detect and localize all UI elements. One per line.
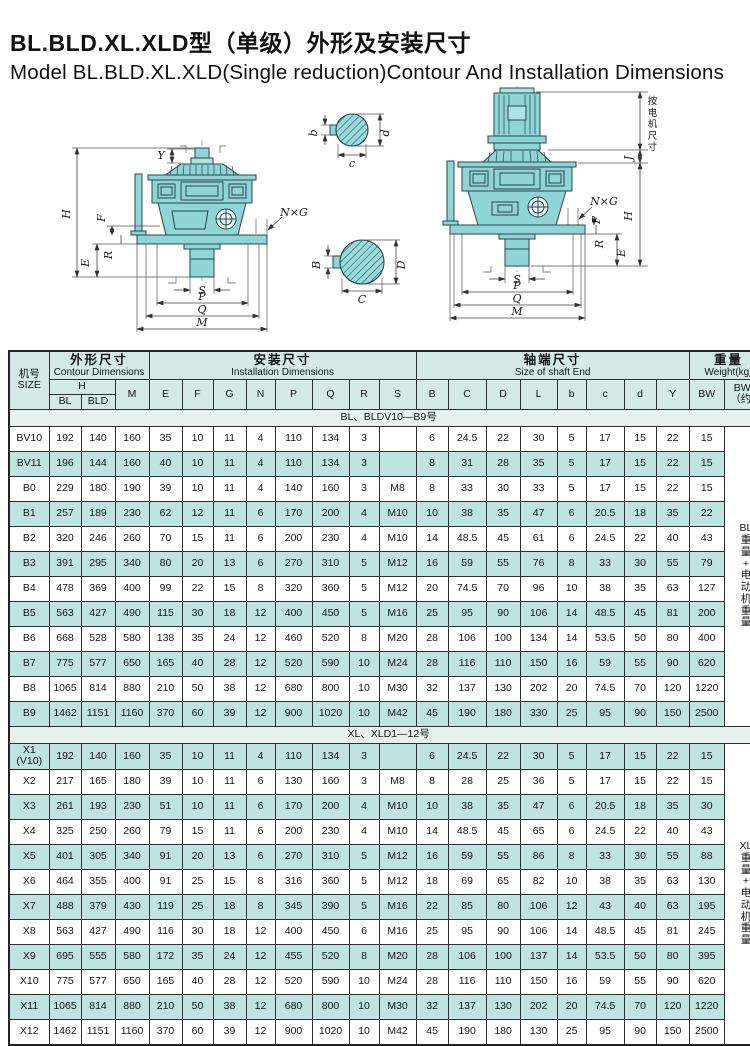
- data-cell: 900: [275, 1020, 312, 1046]
- data-cell: 25: [557, 701, 586, 726]
- data-cell: 28: [213, 651, 246, 676]
- col-header-bw: BW: [689, 380, 724, 410]
- data-cell: 202: [520, 995, 557, 1020]
- data-cell: 106: [520, 601, 557, 626]
- data-cell: 6: [557, 820, 586, 845]
- data-cell: M8: [379, 476, 416, 501]
- data-cell: 11: [213, 795, 246, 820]
- data-cell: 200: [689, 601, 724, 626]
- data-cell: 12: [557, 895, 586, 920]
- row-size-cell: X6: [9, 870, 49, 895]
- data-cell: 36: [520, 770, 557, 795]
- row-size-cell: X10: [9, 970, 49, 995]
- data-cell: 12: [246, 651, 275, 676]
- data-cell: 200: [275, 526, 312, 551]
- data-cell: 35: [486, 795, 520, 820]
- data-cell: 6: [246, 526, 275, 551]
- data-cell: 127: [689, 576, 724, 601]
- data-cell: 30: [689, 795, 724, 820]
- data-cell: 165: [149, 970, 182, 995]
- data-cell: 15: [689, 743, 724, 770]
- data-cell: 8: [557, 551, 586, 576]
- table-row: X646435540091251583163605M12186965821038…: [9, 870, 750, 895]
- data-cell: 70: [624, 676, 656, 701]
- data-cell: 40: [182, 970, 213, 995]
- data-cell: 140: [275, 476, 312, 501]
- data-cell: 63: [656, 870, 689, 895]
- data-cell: 305: [81, 845, 115, 870]
- data-cell: 59: [448, 551, 486, 576]
- data-cell: 30: [182, 601, 213, 626]
- data-cell: 10: [182, 743, 213, 770]
- page-title-en: Model BL.BLD.XL.XLD(Single reduction)Con…: [0, 58, 750, 85]
- col-header-bld: BLD: [81, 394, 115, 409]
- data-cell: 137: [520, 945, 557, 970]
- data-cell: 1160: [115, 701, 149, 726]
- data-cell: 18: [624, 795, 656, 820]
- data-cell: 32: [416, 676, 448, 701]
- data-cell: 668: [49, 626, 81, 651]
- data-cell: 230: [115, 501, 149, 526]
- data-cell: 14: [416, 526, 448, 551]
- data-cell: 65: [486, 870, 520, 895]
- data-cell: 20.5: [586, 795, 624, 820]
- dim-label-p: P: [197, 290, 206, 303]
- data-cell: 680: [275, 995, 312, 1020]
- data-cell: 200: [312, 501, 349, 526]
- data-cell: 110: [275, 451, 312, 476]
- data-cell: 555: [81, 945, 115, 970]
- data-cell: 400: [115, 576, 149, 601]
- data-cell: 59: [586, 970, 624, 995]
- data-cell: 35: [624, 870, 656, 895]
- data-cell: 62: [149, 501, 182, 526]
- data-cell: 14: [557, 601, 586, 626]
- data-cell: 250: [81, 820, 115, 845]
- data-cell: 577: [81, 970, 115, 995]
- dim-label-p-right: P: [512, 279, 521, 292]
- data-cell: 160: [312, 476, 349, 501]
- data-cell: 48.5: [586, 601, 624, 626]
- table-row: B125718923062121161702004M1010383547620.…: [9, 501, 750, 526]
- data-cell: 90: [486, 601, 520, 626]
- data-cell: 160: [115, 743, 149, 770]
- data-cell: 355: [81, 870, 115, 895]
- table-row: X432525026079151162002304M101448.5456562…: [9, 820, 750, 845]
- data-cell: 11: [213, 770, 246, 795]
- data-cell: 40: [656, 526, 689, 551]
- dim-label-c-small: c: [349, 157, 355, 170]
- data-cell: 1151: [81, 1020, 115, 1046]
- data-cell: 137: [448, 676, 486, 701]
- data-cell: 95: [448, 920, 486, 945]
- data-cell: 4: [349, 820, 379, 845]
- data-cell: M8: [379, 770, 416, 795]
- data-cell: 80: [656, 626, 689, 651]
- data-cell: 8: [349, 945, 379, 970]
- col-header-y: Y: [656, 380, 689, 410]
- table-row: B447836940099221583203605M122074.5709610…: [9, 576, 750, 601]
- data-cell: 360: [312, 870, 349, 895]
- col-group-installation: 安装尺寸 Installation Dimensions: [149, 351, 416, 380]
- data-cell: 134: [312, 451, 349, 476]
- data-cell: 17: [586, 743, 624, 770]
- data-cell: 140: [81, 743, 115, 770]
- dim-label-c-large: C: [358, 293, 367, 306]
- table-row: X1077557765016540281252059010M2428116110…: [9, 970, 750, 995]
- data-cell: 15: [213, 576, 246, 601]
- data-cell: 18: [213, 601, 246, 626]
- data-cell: 22: [689, 501, 724, 526]
- data-cell: 106: [448, 945, 486, 970]
- data-cell: 11: [213, 451, 246, 476]
- table-row: B777557765016540281252059010M24281161101…: [9, 651, 750, 676]
- data-cell: 90: [624, 701, 656, 726]
- data-cell: 257: [49, 501, 81, 526]
- table-body: BL、BLDV10—B9号BV1019214016035101141101343…: [9, 409, 750, 1045]
- dim-label-e-right: E: [615, 249, 628, 258]
- data-cell: 6: [557, 795, 586, 820]
- data-cell: 22: [656, 451, 689, 476]
- data-cell: 5: [349, 551, 379, 576]
- data-cell: 17: [586, 426, 624, 451]
- motor-size-note: 按 电 机 尺 寸: [646, 96, 659, 154]
- input-shaft-section-drawing: b d c: [307, 114, 392, 170]
- dim-label-f: F: [95, 214, 108, 223]
- table-row: X540130534091201362703105M12165955868333…: [9, 845, 750, 870]
- data-cell: 3: [349, 426, 379, 451]
- data-cell: 28: [416, 626, 448, 651]
- data-cell: 33: [520, 476, 557, 501]
- data-cell: 106: [520, 895, 557, 920]
- col-header-l: L: [520, 380, 557, 410]
- data-cell: 35: [486, 501, 520, 526]
- table-row: X326119323051101161702004M1010383547620.…: [9, 795, 750, 820]
- data-cell: 15: [182, 526, 213, 551]
- dim-label-q: Q: [197, 303, 206, 316]
- data-cell: 390: [312, 895, 349, 920]
- data-cell: 217: [49, 770, 81, 795]
- data-cell: 110: [486, 970, 520, 995]
- data-cell: 35: [656, 795, 689, 820]
- data-cell: 5: [349, 895, 379, 920]
- data-cell: 6: [246, 501, 275, 526]
- data-cell: 360: [312, 576, 349, 601]
- data-cell: 400: [275, 920, 312, 945]
- data-cell: 520: [312, 626, 349, 651]
- data-cell: 39: [149, 476, 182, 501]
- data-cell: 35: [656, 501, 689, 526]
- data-cell: 15: [624, 770, 656, 795]
- dim-label-b-small: b: [307, 129, 320, 136]
- data-cell: 5: [557, 476, 586, 501]
- data-cell: 195: [689, 895, 724, 920]
- col-header-c-low: c: [586, 380, 624, 410]
- data-cell: 53.5: [586, 945, 624, 970]
- data-cell: 4: [246, 476, 275, 501]
- data-cell: 1462: [49, 1020, 81, 1046]
- data-cell: 150: [520, 970, 557, 995]
- row-size-cell: BV11: [9, 451, 49, 476]
- data-cell: 20: [416, 576, 448, 601]
- data-cell: 59: [448, 845, 486, 870]
- data-cell: 5: [349, 870, 379, 895]
- dim-label-d-large: D: [395, 260, 408, 270]
- data-cell: 11: [213, 820, 246, 845]
- output-shaft-section-drawing: B D C: [310, 240, 408, 306]
- dim-label-j: J: [622, 155, 635, 162]
- data-cell: 6: [349, 920, 379, 945]
- table-row: X1 (V10)19214016035101141101343624.52230…: [9, 743, 750, 770]
- data-cell: 35: [149, 743, 182, 770]
- data-cell: 14: [557, 626, 586, 651]
- data-cell: 230: [312, 526, 349, 551]
- data-cell: 18: [213, 895, 246, 920]
- dim-label-h: H: [60, 209, 73, 220]
- data-cell: 134: [520, 626, 557, 651]
- data-cell: 395: [689, 945, 724, 970]
- data-cell: 55: [656, 551, 689, 576]
- data-cell: 137: [448, 995, 486, 1020]
- col-group-contour: 外形尺寸 Contour Dimensions: [49, 351, 149, 380]
- data-cell: 478: [49, 576, 81, 601]
- col-header-p: P: [275, 380, 312, 410]
- col-header-f: F: [182, 380, 213, 410]
- data-cell: M20: [379, 945, 416, 970]
- data-cell: 43: [689, 820, 724, 845]
- data-cell: 12: [246, 920, 275, 945]
- data-cell: 30: [624, 845, 656, 870]
- data-cell: 35: [182, 945, 213, 970]
- data-cell: 10: [349, 676, 379, 701]
- data-cell: 119: [149, 895, 182, 920]
- data-cell: 800: [312, 676, 349, 701]
- data-cell: 50: [182, 995, 213, 1020]
- data-cell: 460: [275, 626, 312, 651]
- data-cell: 210: [149, 676, 182, 701]
- data-cell: 202: [520, 676, 557, 701]
- data-cell: 80: [486, 895, 520, 920]
- row-size-cell: B4: [9, 576, 49, 601]
- data-cell: 45: [416, 1020, 448, 1046]
- data-cell: 45: [624, 601, 656, 626]
- data-cell: 590: [312, 651, 349, 676]
- table-row: X7488379430119251883453905M1622858010612…: [9, 895, 750, 920]
- data-cell: 30: [520, 743, 557, 770]
- col-header-b-cap: B: [416, 380, 448, 410]
- data-cell: 16: [557, 970, 586, 995]
- data-cell: 15: [689, 426, 724, 451]
- data-cell: 30: [486, 476, 520, 501]
- data-cell: 18: [416, 870, 448, 895]
- data-cell: 15: [689, 770, 724, 795]
- data-cell: 20.5: [586, 501, 624, 526]
- data-cell: 8: [557, 845, 586, 870]
- data-cell: 15: [689, 451, 724, 476]
- page-title-cn: BL.BLD.XL.XLD型（单级）外形及安装尺寸: [0, 0, 750, 58]
- data-cell: 246: [81, 526, 115, 551]
- row-size-cell: X11: [9, 995, 49, 1020]
- data-cell: 60: [182, 701, 213, 726]
- data-cell: 50: [624, 945, 656, 970]
- data-cell: 10: [416, 795, 448, 820]
- section-label: BL、BLDV10—B9号: [9, 409, 750, 426]
- data-cell: 261: [49, 795, 81, 820]
- data-cell: 110: [275, 743, 312, 770]
- data-cell: 577: [81, 651, 115, 676]
- data-cell: 427: [81, 920, 115, 945]
- data-cell: 47: [520, 795, 557, 820]
- data-cell: 6: [557, 526, 586, 551]
- data-cell: 48.5: [586, 920, 624, 945]
- data-cell: 192: [49, 426, 81, 451]
- data-cell: 79: [689, 551, 724, 576]
- row-size-cell: X4: [9, 820, 49, 845]
- data-cell: M10: [379, 501, 416, 526]
- data-cell: 33: [586, 551, 624, 576]
- row-size-cell: B9: [9, 701, 49, 726]
- data-cell: 369: [81, 576, 115, 601]
- data-cell: 520: [275, 651, 312, 676]
- col-header-d-low: d: [624, 380, 656, 410]
- data-cell: M42: [379, 701, 416, 726]
- data-cell: 3: [349, 770, 379, 795]
- section-header-row: BL、BLDV10—B9号: [9, 409, 750, 426]
- row-size-cell: B0: [9, 476, 49, 501]
- data-cell: 490: [115, 601, 149, 626]
- data-cell: 150: [656, 1020, 689, 1046]
- data-cell: 24: [213, 626, 246, 651]
- data-cell: 165: [149, 651, 182, 676]
- data-cell: 490: [115, 920, 149, 945]
- data-cell: 391: [49, 551, 81, 576]
- data-cell: [379, 426, 416, 451]
- data-cell: 345: [275, 895, 312, 920]
- data-cell: 2500: [689, 1020, 724, 1046]
- data-cell: 95: [448, 601, 486, 626]
- data-cell: 76: [520, 551, 557, 576]
- data-cell: 25: [486, 770, 520, 795]
- data-cell: M12: [379, 870, 416, 895]
- dim-label-r: R: [102, 251, 115, 260]
- data-cell: 33: [586, 845, 624, 870]
- data-cell: 775: [49, 651, 81, 676]
- data-cell: [379, 743, 416, 770]
- data-cell: 120: [656, 676, 689, 701]
- data-cell: 210: [149, 995, 182, 1020]
- data-cell: 134: [312, 426, 349, 451]
- data-cell: 22: [182, 576, 213, 601]
- col-group-weight: 重量 Weight(kg): [689, 351, 750, 380]
- data-cell: 10: [349, 701, 379, 726]
- data-cell: 5: [557, 743, 586, 770]
- data-cell: 775: [49, 970, 81, 995]
- data-cell: 95: [586, 1020, 624, 1046]
- data-cell: M10: [379, 795, 416, 820]
- data-cell: 563: [49, 920, 81, 945]
- col-header-size: 机号SIZE: [9, 351, 49, 409]
- header-letter-row: H M E F G N P Q R S B C D L b c d Y BW B…: [9, 380, 750, 395]
- data-cell: 170: [275, 501, 312, 526]
- data-cell: 4: [349, 501, 379, 526]
- data-cell: 6: [416, 426, 448, 451]
- data-cell: 160: [115, 451, 149, 476]
- data-cell: 15: [213, 870, 246, 895]
- right-view-drawing: J H N×G F R E S P Q M: [443, 86, 648, 321]
- data-cell: 35: [182, 626, 213, 651]
- data-cell: 1160: [115, 1020, 149, 1046]
- data-cell: 10: [182, 451, 213, 476]
- data-cell: 88: [689, 845, 724, 870]
- data-cell: 55: [486, 551, 520, 576]
- table-row: B55634274901153018124004505M162595901061…: [9, 601, 750, 626]
- data-cell: 13: [213, 551, 246, 576]
- data-cell: 100: [486, 626, 520, 651]
- data-cell: 38: [586, 576, 624, 601]
- data-cell: 15: [624, 426, 656, 451]
- col-group-shaft-end: 轴端尺寸 Size of shaft End: [416, 351, 689, 380]
- data-cell: M20: [379, 626, 416, 651]
- data-cell: 15: [624, 476, 656, 501]
- data-cell: 379: [81, 895, 115, 920]
- data-cell: 17: [586, 476, 624, 501]
- data-cell: 39: [149, 770, 182, 795]
- data-cell: 99: [149, 576, 182, 601]
- data-cell: 40: [624, 895, 656, 920]
- data-cell: 180: [486, 1020, 520, 1046]
- data-cell: 22: [656, 476, 689, 501]
- data-cell: 650: [115, 970, 149, 995]
- row-size-cell: X2: [9, 770, 49, 795]
- dim-label-y: Y: [157, 149, 166, 162]
- data-cell: 120: [656, 995, 689, 1020]
- col-header-s: S: [379, 380, 416, 410]
- data-cell: 14: [557, 945, 586, 970]
- data-cell: 50: [624, 626, 656, 651]
- data-cell: 28: [486, 451, 520, 476]
- data-cell: 310: [312, 845, 349, 870]
- data-cell: 22: [486, 426, 520, 451]
- data-cell: 520: [275, 970, 312, 995]
- data-cell: 580: [115, 945, 149, 970]
- data-cell: 25: [416, 601, 448, 626]
- data-cell: M24: [379, 970, 416, 995]
- data-cell: 70: [486, 576, 520, 601]
- data-cell: 22: [656, 770, 689, 795]
- data-cell: 16: [416, 845, 448, 870]
- data-cell: 590: [312, 970, 349, 995]
- data-cell: 25: [182, 895, 213, 920]
- data-cell: 165: [81, 770, 115, 795]
- data-cell: 15: [624, 451, 656, 476]
- data-cell: 40: [656, 820, 689, 845]
- data-cell: 4: [246, 451, 275, 476]
- section-header-row: XL、XLD1—12号: [9, 726, 750, 743]
- weight-note-cell: BL 重 量 + 电 动 机 重 量: [724, 426, 750, 726]
- data-cell: 464: [49, 870, 81, 895]
- data-cell: 81: [656, 601, 689, 626]
- data-cell: 316: [275, 870, 312, 895]
- data-cell: 488: [49, 895, 81, 920]
- data-cell: 18: [213, 920, 246, 945]
- data-cell: 12: [246, 970, 275, 995]
- data-cell: 180: [486, 701, 520, 726]
- data-cell: 6: [246, 770, 275, 795]
- dim-label-r-right: R: [593, 240, 606, 249]
- data-cell: 260: [115, 526, 149, 551]
- data-cell: 1065: [49, 676, 81, 701]
- row-size-cell: X5: [9, 845, 49, 870]
